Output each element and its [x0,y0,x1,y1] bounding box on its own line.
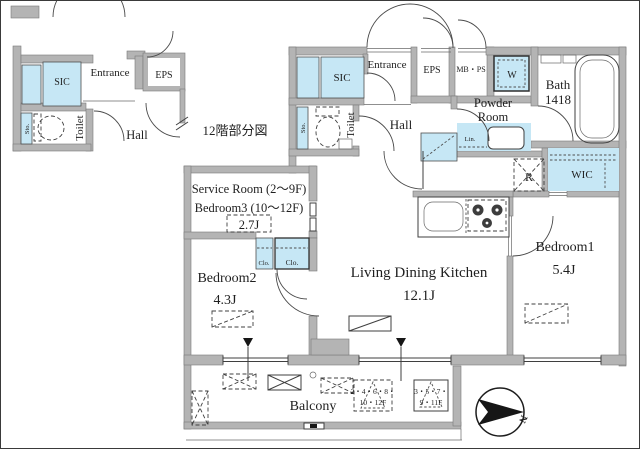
inset-label-eps: EPS [155,70,172,81]
inset-sic-cabinet [22,65,41,104]
label-wic: WIC [571,169,592,181]
inset-label-hall: Hall [126,128,148,142]
label-bedroom2-size: 4.3J [214,293,238,308]
inset-label-toilet: Toilet [74,115,86,141]
ac-unit-symbol [321,378,353,393]
drain-icon [310,372,316,378]
label-closet-large: Clo. [286,258,299,267]
inset-caption: 12階部分図 [202,123,267,138]
folding-door [310,203,316,231]
inset-label-sic: SIC [54,77,70,88]
label-linen: Lin. [465,136,476,143]
inset-label-entrance: Entrance [90,67,129,79]
balcony-vent [304,423,324,429]
label-bedroom2: Bedroom2 [197,271,256,286]
bedroom2-window [223,356,288,365]
label-sic: SIC [333,72,350,84]
label-eps: EPS [423,65,440,76]
label-ldk-size: 12.1J [403,288,435,304]
label-closet-small: Clo. [258,260,269,267]
ac-unit-symbol [223,374,256,389]
label-note1-2: 10・12F [360,398,387,407]
label-note2-1: 3・5・7・ [414,387,448,396]
label-service-1: Service Room (2〜9F) [192,182,307,196]
label-service-size: 2.7J [239,218,260,232]
label-note1-1: 2・4・6・8・ [351,387,396,396]
window-symbols [223,356,601,365]
label-powder-2: Room [478,110,509,124]
label-bath: Bath [546,77,571,92]
label-bedroom1: Bedroom1 [535,240,594,255]
label-hall: Hall [390,117,413,132]
floor-plan-canvas: SIC Entrance EPS Sto. Toilet Hall 12階部分図 [1,1,640,449]
label-storage: Sto. [300,122,307,133]
label-entrance: Entrance [367,59,406,71]
ldk-window [359,356,451,365]
washbasin-icon [488,127,524,149]
label-powder-1: Powder [474,96,513,110]
label-bath-size: 1418 [545,92,571,107]
label-balcony: Balcony [290,399,337,414]
floorplan-image: SIC Entrance EPS Sto. Toilet Hall 12階部分図 [0,0,640,449]
inset-toilet-icon [34,114,64,141]
hall-cupboard [421,133,457,161]
entrance-door-arc [367,4,453,47]
label-ldk: Living Dining Kitchen [351,265,488,281]
ac-unit-symbol [268,375,301,390]
bedroom1-window [524,356,601,365]
label-toilet: Toilet [345,112,357,138]
inset-label-storage: Sto. [24,123,31,134]
label-fridge: R [525,170,533,184]
label-service-2: Bedroom3 (10〜12F) [195,201,304,215]
marker-triangle-ldk [396,338,406,347]
kitchen-counter [418,197,509,237]
label-bedroom1-size: 5.4J [553,263,577,278]
compass-icon: N [476,388,529,436]
ac-unit-symbol [192,391,208,425]
marker-triangle-bedroom2 [243,338,253,347]
label-mbps: MB・PS [456,65,485,74]
main-plan: N SIC Entrance EPS MB・PS W Bath 1418 Pow… [184,4,626,440]
sic-cabinet [297,57,319,98]
label-note2-2: 9・11F [420,398,443,407]
inset-plan: SIC Entrance EPS Sto. Toilet Hall 12階部分図 [11,1,268,151]
label-washer: W [507,70,517,81]
